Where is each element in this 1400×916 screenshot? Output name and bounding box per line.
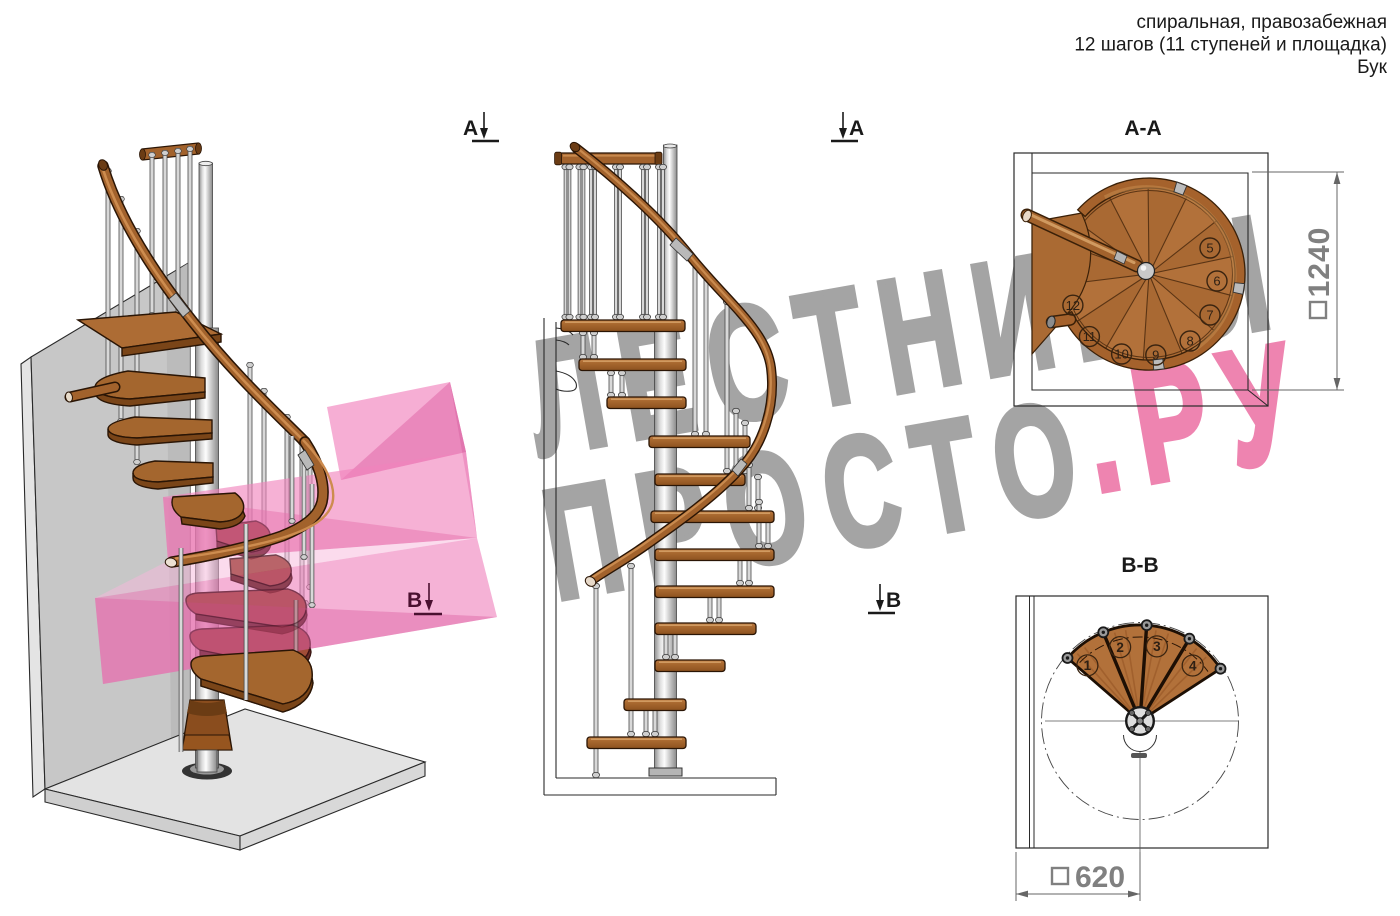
- svg-text:1240: 1240: [1303, 227, 1336, 298]
- svg-text:спиральная, правозабежная: спиральная, правозабежная: [1137, 12, 1387, 33]
- svg-text:А: А: [849, 117, 864, 140]
- svg-text:7: 7: [1206, 308, 1213, 323]
- svg-text:11: 11: [1083, 329, 1097, 344]
- svg-text:8: 8: [1186, 334, 1193, 349]
- svg-text:Бук: Бук: [1357, 57, 1388, 78]
- svg-text:А: А: [463, 117, 478, 140]
- svg-text:В-В: В-В: [1121, 554, 1158, 577]
- svg-text:12: 12: [1066, 298, 1080, 313]
- svg-text:В: В: [886, 589, 901, 612]
- svg-text:А-А: А-А: [1124, 117, 1161, 140]
- svg-text:10: 10: [1114, 347, 1128, 362]
- svg-text:4: 4: [1189, 658, 1197, 673]
- svg-text:9: 9: [1152, 348, 1159, 363]
- svg-text:2: 2: [1116, 640, 1124, 655]
- svg-text:5: 5: [1206, 241, 1213, 256]
- svg-text:620: 620: [1075, 861, 1125, 894]
- svg-text:В: В: [407, 589, 422, 612]
- svg-text:1: 1: [1084, 658, 1092, 673]
- svg-text:12 шагов (11 ступеней и площад: 12 шагов (11 ступеней и площадка): [1074, 35, 1387, 56]
- svg-text:3: 3: [1153, 639, 1161, 654]
- svg-text:6: 6: [1213, 274, 1220, 289]
